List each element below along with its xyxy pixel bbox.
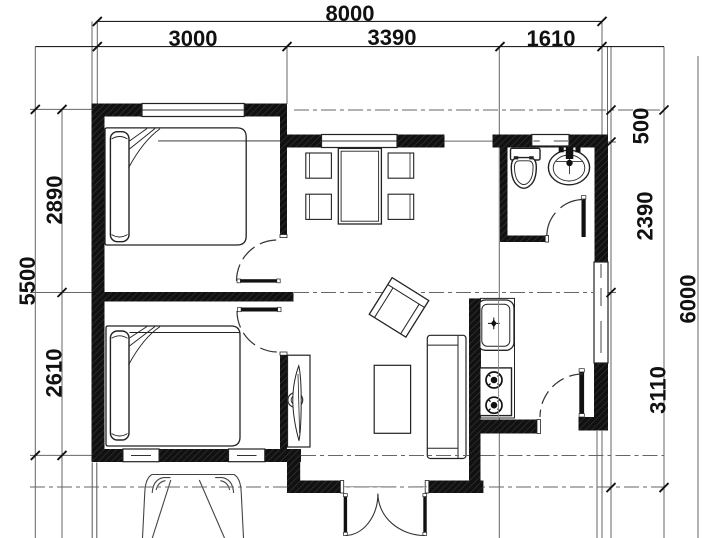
svg-text:8000: 8000 <box>326 1 375 26</box>
svg-text:2890: 2890 <box>42 176 67 225</box>
svg-text:2390: 2390 <box>633 192 658 241</box>
svg-text:3110: 3110 <box>645 366 670 414</box>
svg-text:2610: 2610 <box>42 349 67 398</box>
svg-text:3390: 3390 <box>368 25 417 50</box>
svg-text:1610: 1610 <box>527 26 576 51</box>
svg-text:500: 500 <box>629 108 654 145</box>
svg-text:3000: 3000 <box>169 26 218 51</box>
svg-text:5500: 5500 <box>15 257 40 306</box>
svg-text:6000: 6000 <box>676 275 701 324</box>
